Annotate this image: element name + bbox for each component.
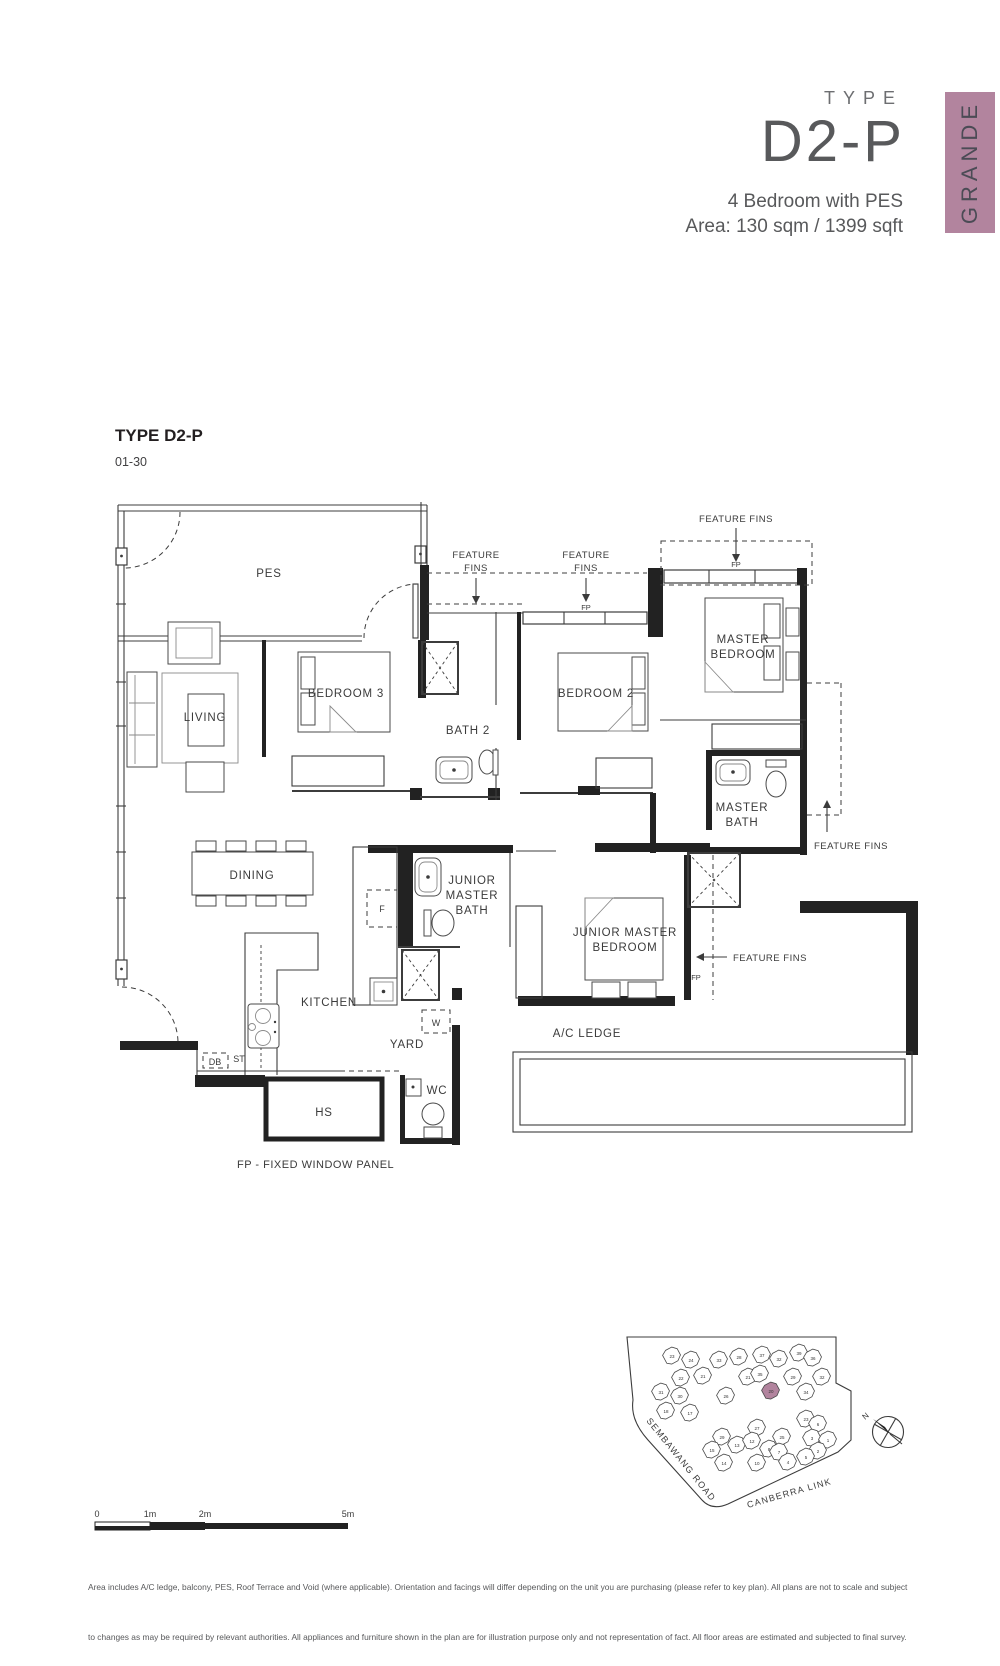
room-label-kitchen: KITCHEN [301, 997, 357, 1009]
svg-text:34: 34 [803, 1390, 809, 1395]
svg-text:15: 15 [709, 1448, 715, 1453]
room-label-pes: PES [256, 568, 281, 580]
feature-fins-2a: FEATURE [562, 550, 609, 561]
svg-text:37: 37 [759, 1353, 765, 1358]
scale-tick-1m: 1m [144, 1509, 157, 1519]
room-label-yard: YARD [390, 1039, 424, 1051]
room-label-master-bath-2: BATH [725, 817, 758, 829]
fp-note: FP - FIXED WINDOW PANEL [237, 1159, 394, 1171]
sitemap-building: 31 [650, 1381, 671, 1402]
sitemap-building: 37 [751, 1344, 772, 1365]
room-label-jr-bath-1: JUNIOR [448, 875, 496, 887]
room-label-master-bath-1: MASTER [716, 802, 769, 814]
disclaimer-line-1: Area includes A/C ledge, balcony, PES, R… [88, 1579, 964, 1596]
hall-door-arc [364, 584, 418, 638]
svg-text:17: 17 [687, 1411, 693, 1416]
sitemap-building: 21 [692, 1365, 713, 1386]
room-label-living: LIVING [184, 712, 227, 724]
svg-text:26: 26 [723, 1394, 729, 1399]
svg-text:24: 24 [688, 1358, 694, 1363]
compass-icon: N [861, 1411, 904, 1448]
road-label-canberra: CANBERRA LINK [746, 1476, 833, 1510]
tag-db: DB [209, 1057, 222, 1067]
sitemap-building: 32 [768, 1348, 789, 1369]
sitemap-building: 32 [811, 1366, 832, 1387]
svg-text:12: 12 [749, 1439, 755, 1444]
sitemap-building: 34 [795, 1381, 816, 1402]
svg-text:30: 30 [677, 1394, 683, 1399]
road-label-sembawang: SEMBAWANG ROAD [644, 1416, 717, 1503]
room-label-jr-bath-2: MASTER [446, 890, 499, 902]
room-label-bedroom2: BEDROOM 2 [558, 688, 634, 700]
room-label-bath2: BATH 2 [446, 725, 490, 737]
pes-entry-door-arc [124, 512, 180, 568]
svg-text:28: 28 [736, 1355, 742, 1360]
sitemap-building: 33 [708, 1349, 729, 1370]
footer-disclaimer: Area includes A/C ledge, balcony, PES, R… [88, 1546, 964, 1666]
svg-text:31: 31 [658, 1390, 664, 1395]
annotation-layer [122, 512, 841, 1071]
tag-fp-1: FP [581, 603, 591, 612]
room-label-ac-ledge: A/C LEDGE [553, 1028, 622, 1040]
feature-fins-3: FEATURE FINS [699, 514, 773, 525]
scale-bar: 0 1m 2m 5m [94, 1509, 354, 1530]
room-label-wc: WC [427, 1085, 448, 1097]
svg-text:14: 14 [721, 1461, 727, 1466]
feature-fins-5: FEATURE FINS [733, 953, 807, 964]
sitemap-building: 23 [661, 1345, 682, 1366]
svg-text:20: 20 [768, 1389, 774, 1394]
scale-tick-5m: 5m [342, 1509, 355, 1519]
floor-plan-svg: PES LIVING BEDROOM 3 BATH 2 BEDROOM 2 MA… [0, 0, 1000, 1666]
tag-fp-2: FP [731, 560, 741, 569]
svg-text:23: 23 [803, 1417, 809, 1422]
svg-text:21: 21 [745, 1375, 751, 1380]
room-label-master-1: MASTER [717, 634, 770, 646]
svg-text:10: 10 [754, 1461, 760, 1466]
room-label-jr-bed-1: JUNIOR MASTER [573, 927, 677, 939]
room-label-dining: DINING [229, 870, 274, 882]
brochure-page: TYPE D2-P 4 Bedroom with PES Area: 130 s… [0, 0, 1000, 1666]
svg-text:22: 22 [678, 1376, 684, 1381]
feature-fins-2b: FINS [574, 563, 598, 574]
scale-tick-2m: 2m [199, 1509, 212, 1519]
feature-fins-1b: FINS [464, 563, 488, 574]
room-label-jr-bed-2: BEDROOM [592, 942, 657, 954]
svg-text:29: 29 [790, 1375, 796, 1380]
disclaimer-line-2: to changes as may be required by relevan… [88, 1629, 964, 1646]
compass-north-label: N [861, 1411, 871, 1422]
svg-text:32: 32 [819, 1375, 825, 1380]
svg-text:21: 21 [700, 1374, 706, 1379]
room-label-hs: HS [315, 1107, 333, 1119]
tag-storage: ST [233, 1054, 245, 1064]
svg-text:29: 29 [719, 1435, 725, 1440]
sitemap-building: 26 [715, 1385, 736, 1406]
sitemap-building: 30 [669, 1385, 690, 1406]
svg-text:23: 23 [669, 1354, 675, 1359]
svg-text:32: 32 [776, 1357, 782, 1362]
tag-fridge: F [379, 904, 385, 914]
room-label-bedroom3: BEDROOM 3 [308, 688, 384, 700]
svg-text:27: 27 [754, 1426, 760, 1431]
svg-text:18: 18 [663, 1409, 669, 1414]
sitemap-building: 20 [760, 1380, 781, 1401]
sitemap-building: 17 [679, 1402, 700, 1423]
sitemap-building: 29 [782, 1366, 803, 1387]
svg-text:25: 25 [779, 1435, 785, 1440]
svg-text:39: 39 [796, 1351, 802, 1356]
scale-tick-0: 0 [94, 1509, 99, 1519]
hall-door-leaf [413, 584, 418, 638]
room-label-master-2: BEDROOM [710, 649, 775, 661]
room-label-jr-bath-3: BATH [455, 905, 488, 917]
svg-text:35: 35 [757, 1372, 763, 1377]
feature-fins-1a: FEATURE [452, 550, 499, 561]
sitemap-building: 22 [670, 1367, 691, 1388]
site-map: 2324222131301817332826213732352029393634… [627, 1337, 904, 1510]
feature-fins-4: FEATURE FINS [814, 841, 888, 852]
svg-text:33: 33 [716, 1358, 722, 1363]
sitemap-building: 28 [728, 1346, 749, 1367]
sitemap-building: 24 [680, 1349, 701, 1370]
walls-layer [116, 502, 918, 1145]
svg-text:36: 36 [810, 1356, 816, 1361]
sitemap-building: 18 [655, 1400, 676, 1421]
tag-washer: W [432, 1018, 441, 1028]
svg-text:13: 13 [734, 1443, 740, 1448]
side-entry-door-arc [122, 987, 178, 1043]
tag-fp-3: FP [691, 973, 701, 982]
